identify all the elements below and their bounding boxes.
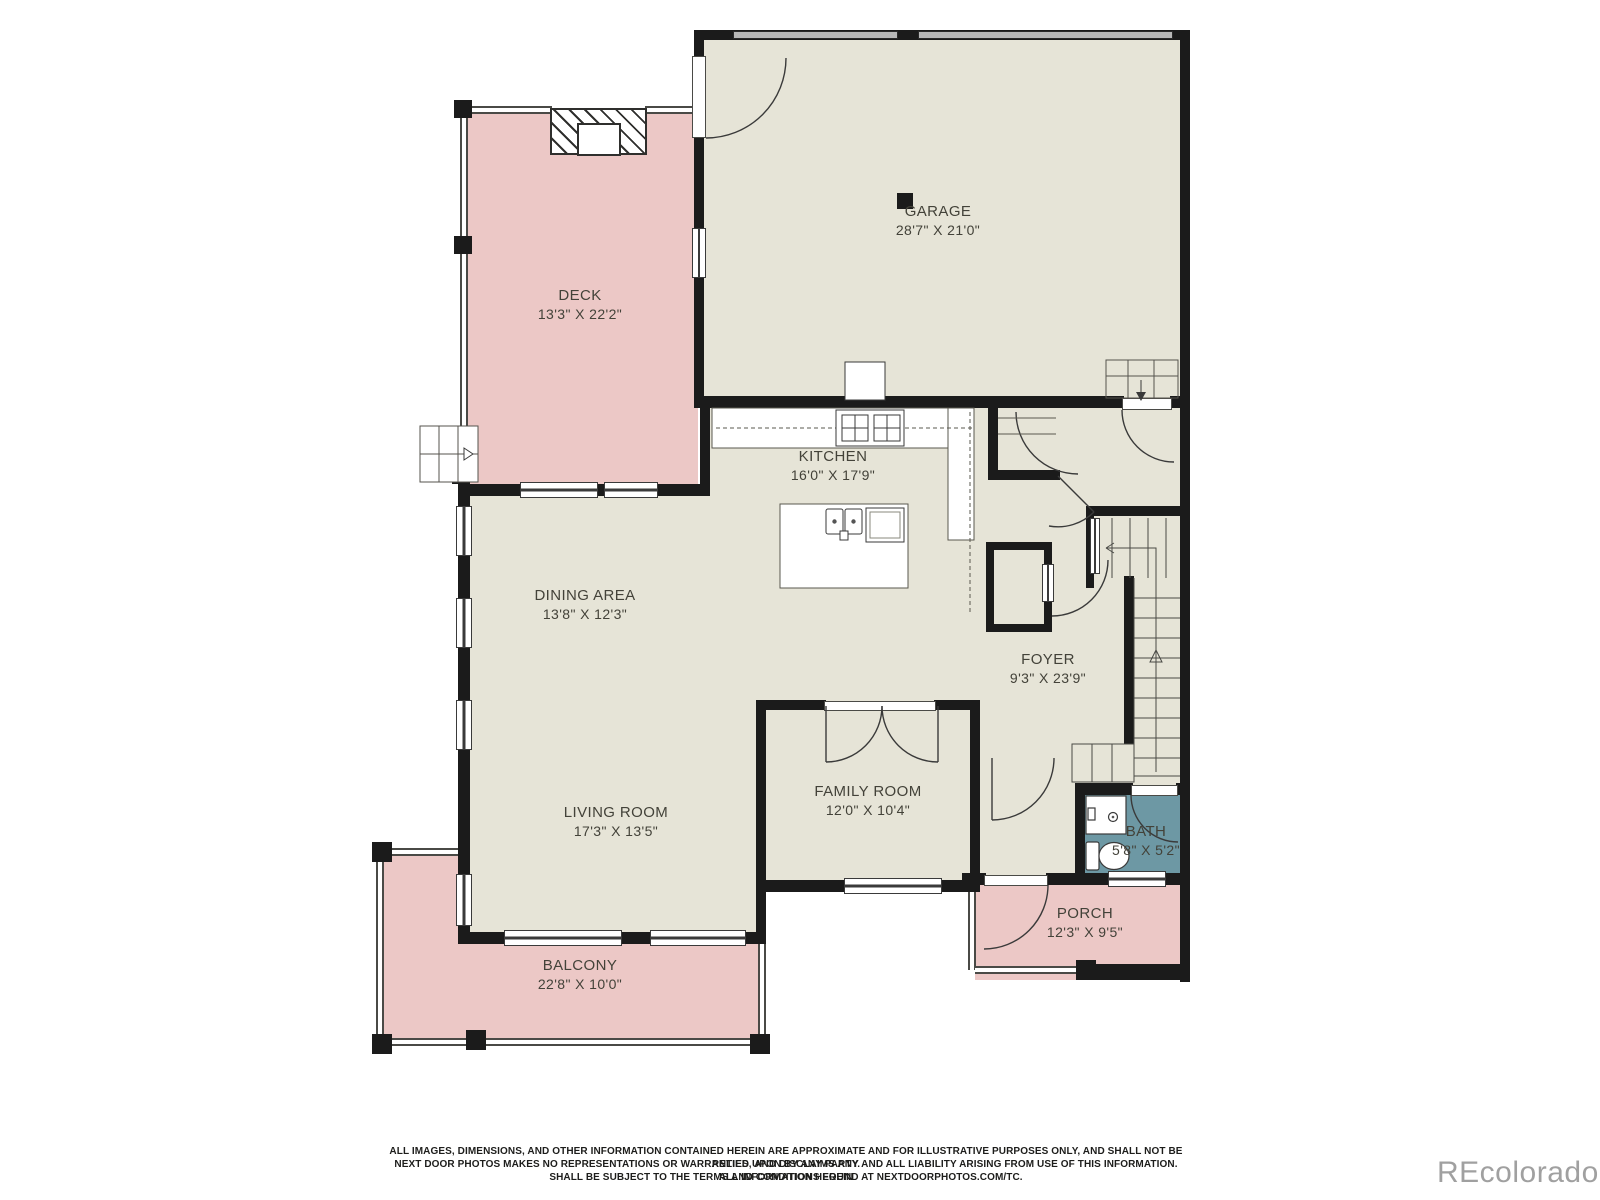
floor-plan-page: GARAGE 28'7" X 21'0" DECK 13'3" X 22'2" … <box>0 0 1600 1200</box>
bath-dims: 5'8" X 5'2" <box>1096 841 1196 860</box>
room-label-foyer: FOYER 9'3" X 23'9" <box>948 650 1148 688</box>
pantry-door-arc <box>1052 560 1108 616</box>
deck-name: DECK <box>480 286 680 305</box>
balcony-name: BALCONY <box>480 956 680 975</box>
garage-steps-arrow <box>1136 392 1146 401</box>
mudroom-door-arc <box>1016 412 1078 474</box>
room-label-bath: BATH 5'8" X 5'2" <box>1096 822 1196 860</box>
room-label-dining: DINING AREA 13'8" X 12'3" <box>485 586 685 624</box>
french-door-right-arc <box>882 706 938 762</box>
family-dims: 12'0" X 10'4" <box>768 801 968 820</box>
garage-dims: 28'7" X 21'0" <box>838 221 1038 240</box>
dishwasher <box>866 508 904 542</box>
foyer-door-arc <box>992 758 1054 820</box>
living-name: LIVING ROOM <box>516 803 716 822</box>
foyer-name: FOYER <box>948 650 1148 669</box>
garage-steps <box>1106 360 1178 401</box>
room-label-living: LIVING ROOM 17'3" X 13'5" <box>516 803 716 841</box>
dining-name: DINING AREA <box>485 586 685 605</box>
room-label-garage: GARAGE 28'7" X 21'0" <box>838 202 1038 240</box>
room-label-family: FAMILY ROOM 12'0" X 10'4" <box>768 782 968 820</box>
deck-steps <box>420 426 478 482</box>
family-name: FAMILY ROOM <box>768 782 968 801</box>
sink-faucet <box>840 531 848 540</box>
kitchen-dims: 16'0" X 17'9" <box>733 466 933 485</box>
garage-side-door-arc <box>706 58 786 138</box>
french-door-left-arc <box>826 706 882 762</box>
garage-name: GARAGE <box>838 202 1038 221</box>
kitchen-name: KITCHEN <box>733 447 933 466</box>
mud-closet-door-leaf <box>1058 476 1094 512</box>
room-label-balcony: BALCONY 22'8" X 10'0" <box>480 956 680 994</box>
kitchen-fixtures <box>712 362 1056 614</box>
vanity-soap <box>1088 808 1095 820</box>
room-label-deck: DECK 13'3" X 22'2" <box>480 286 680 324</box>
recolorado-watermark: REcolorado <box>1437 1156 1599 1190</box>
room-label-kitchen: KITCHEN 16'0" X 17'9" <box>733 447 933 485</box>
plan-linework <box>0 0 1600 1200</box>
porch-name: PORCH <box>985 904 1185 923</box>
garage-utility-box <box>845 362 885 400</box>
balcony-dims: 22'8" X 10'0" <box>480 975 680 994</box>
room-label-porch: PORCH 12'3" X 9'5" <box>985 904 1185 942</box>
deck-dims: 13'3" X 22'2" <box>480 305 680 324</box>
dining-dims: 13'8" X 12'3" <box>485 605 685 624</box>
living-dims: 17'3" X 13'5" <box>516 822 716 841</box>
disclaimer-line-3: SHALL BE SUBJECT TO THE TERMS AND CONDIT… <box>386 1171 1186 1184</box>
garage-entry-door-arc <box>1122 410 1174 462</box>
porch-dims: 12'3" X 9'5" <box>985 923 1185 942</box>
mud-closet-door-arc <box>1049 512 1094 527</box>
bath-name: BATH <box>1096 822 1196 841</box>
foyer-dims: 9'3" X 23'9" <box>948 669 1148 688</box>
